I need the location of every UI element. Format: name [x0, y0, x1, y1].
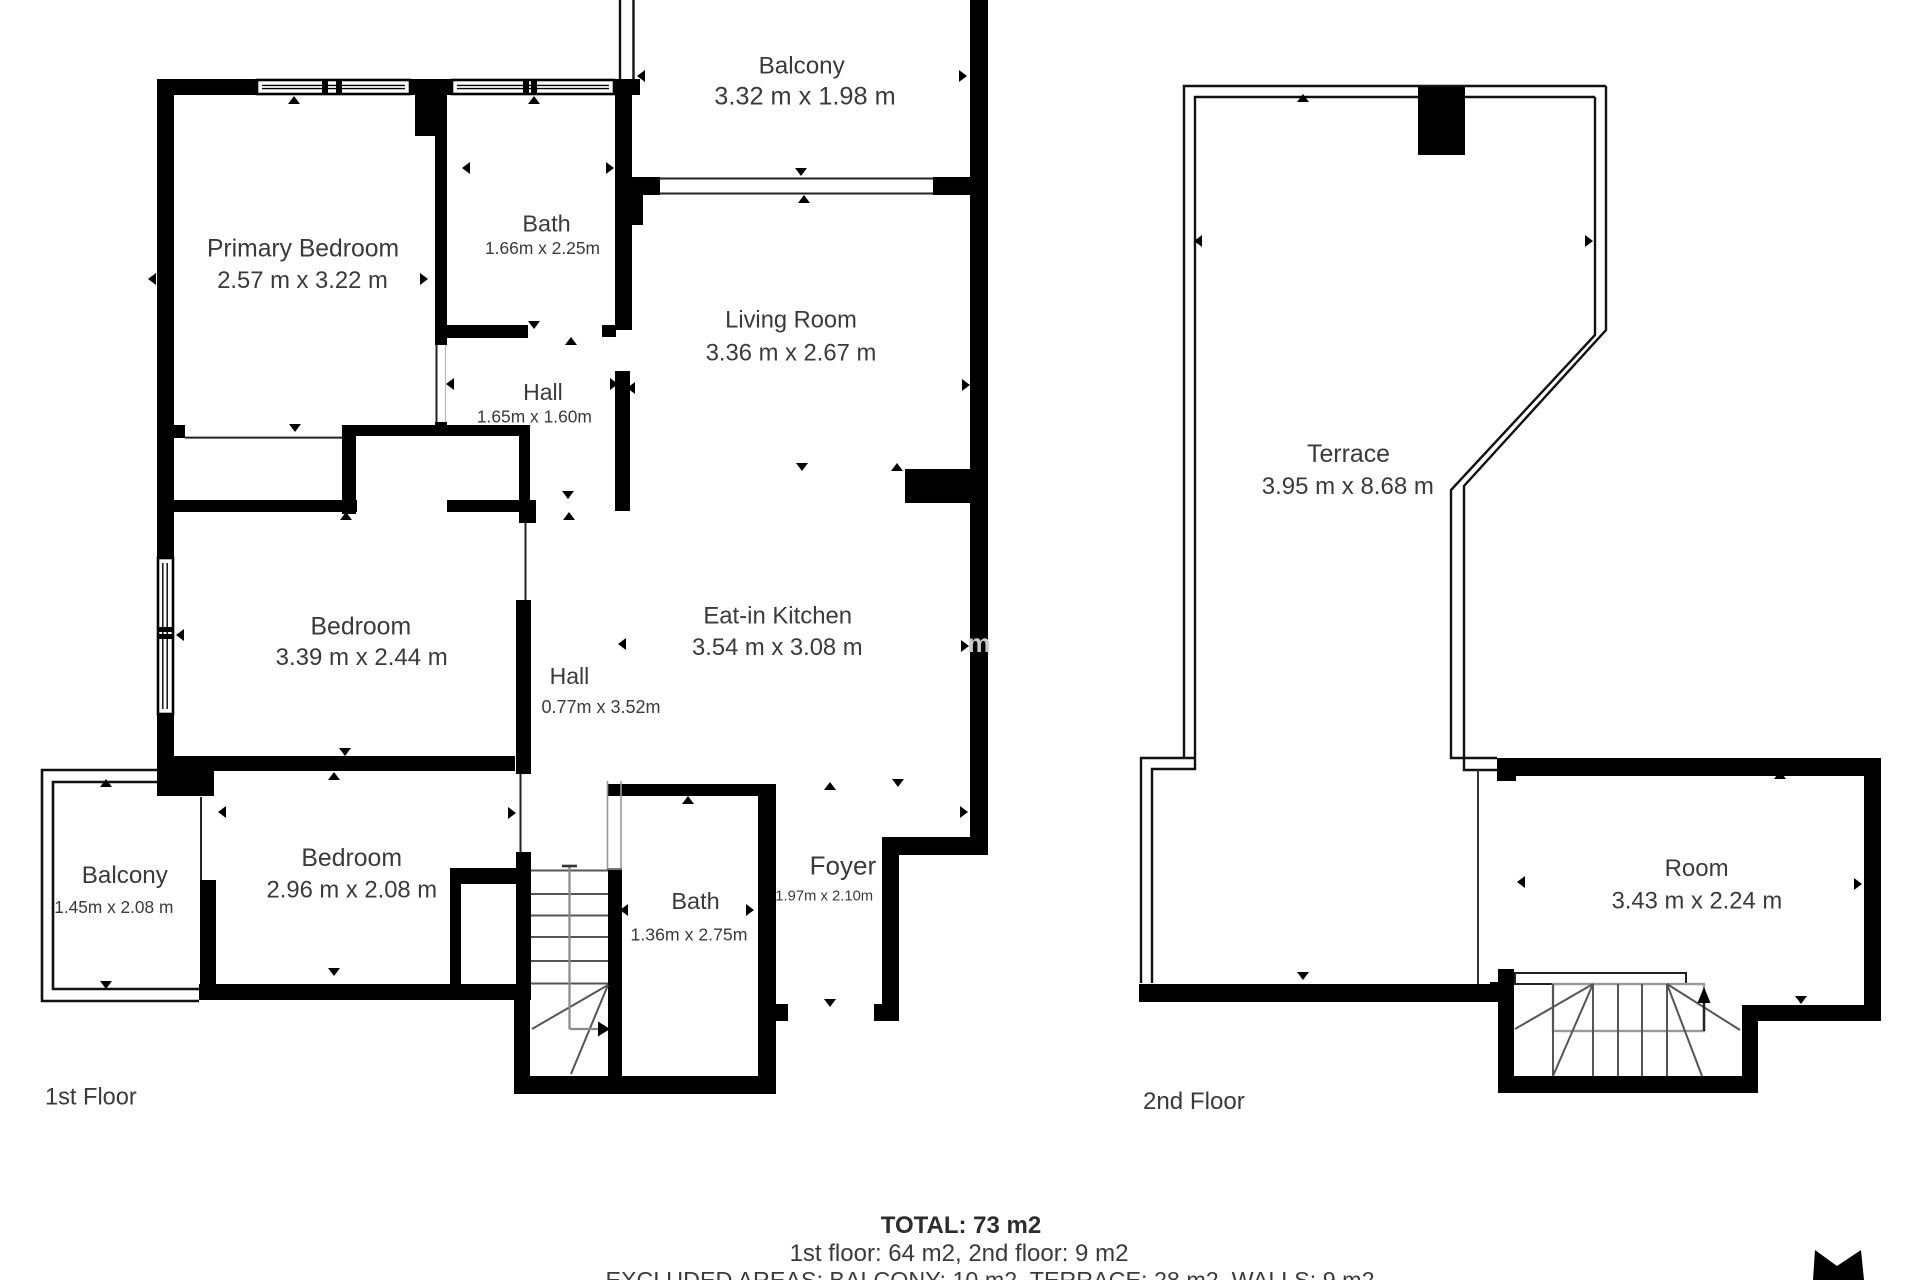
svg-text:3.32 m x 1.98 m: 3.32 m x 1.98 m [714, 83, 895, 111]
svg-text:1st floor: 64 m2, 2nd floor: 9: 1st floor: 64 m2, 2nd floor: 9 m2 [790, 1240, 1129, 1267]
svg-text:1.36m x 2.75m: 1.36m x 2.75m [631, 925, 748, 945]
svg-text:Balcony: Balcony [759, 53, 846, 80]
svg-text:Room: Room [1665, 855, 1729, 882]
svg-text:3.95 m x 8.68 m: 3.95 m x 8.68 m [1262, 473, 1434, 500]
svg-text:TOTAL: 73 m2: TOTAL: 73 m2 [881, 1212, 1041, 1239]
svg-text:Bath: Bath [671, 888, 719, 914]
svg-text:2.57 m x 3.22 m: 2.57 m x 3.22 m [217, 267, 388, 294]
svg-text:Primary Bedroom: Primary Bedroom [207, 236, 399, 263]
svg-text:3.54 m x 3.08 m: 3.54 m x 3.08 m [692, 634, 863, 661]
svg-text:Terrace: Terrace [1307, 440, 1390, 468]
svg-text:Bedroom: Bedroom [301, 845, 402, 872]
svg-text:1.45m x 2.08 m: 1.45m x 2.08 m [54, 897, 173, 917]
svg-text:2nd Floor: 2nd Floor [1143, 1088, 1245, 1115]
svg-text:Hall: Hall [523, 379, 563, 405]
svg-text:EXCLUDED AREAS: BALCONY: 10 m2: EXCLUDED AREAS: BALCONY: 10 m2, TERRACE:… [605, 1267, 1374, 1280]
svg-text:0.77m x 3.52m: 0.77m x 3.52m [541, 697, 660, 717]
svg-text:3.39 m x 2.44 m: 3.39 m x 2.44 m [276, 644, 448, 671]
svg-text:Living Room: Living Room [725, 308, 857, 334]
svg-text:Balcony: Balcony [82, 862, 169, 889]
svg-text:Bath: Bath [522, 211, 570, 237]
svg-text:2.96 m x 2.08 m: 2.96 m x 2.08 m [266, 877, 437, 904]
svg-text:Foyer: Foyer [810, 851, 877, 881]
svg-text:Eat-in Kitchen: Eat-in Kitchen [703, 603, 852, 630]
svg-text:1.65m x 1.60m: 1.65m x 1.60m [477, 407, 592, 427]
svg-text:1.66m x 2.25m: 1.66m x 2.25m [485, 238, 600, 258]
svg-text:3.43 m x 2.24 m: 3.43 m x 2.24 m [1612, 888, 1783, 915]
svg-text:3.36 m x 2.67 m: 3.36 m x 2.67 m [706, 340, 877, 367]
svg-text:1st Floor: 1st Floor [45, 1085, 137, 1111]
svg-text:m: m [967, 628, 990, 658]
svg-text:Hall: Hall [550, 663, 590, 689]
svg-text:Bedroom: Bedroom [310, 613, 411, 640]
svg-text:1.97m x 2.10m: 1.97m x 2.10m [775, 889, 873, 905]
